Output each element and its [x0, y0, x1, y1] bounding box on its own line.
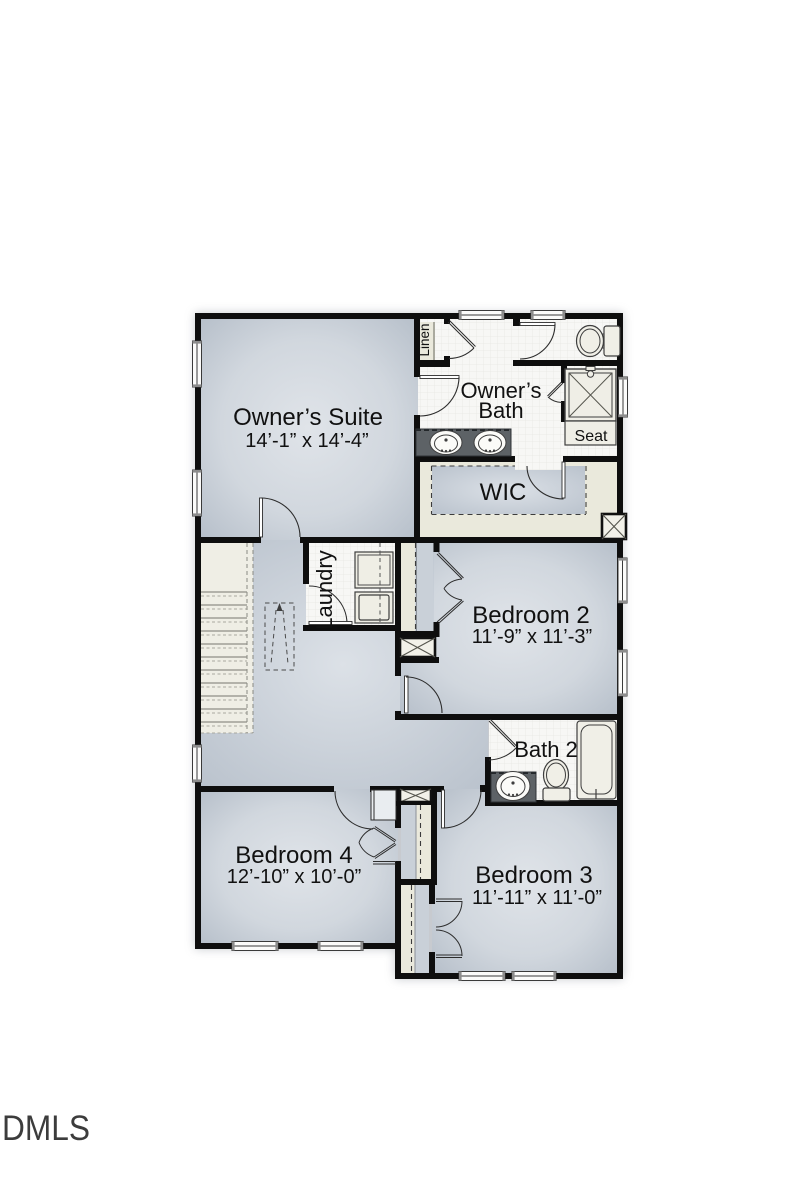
svg-text:11’-9” x 11’-3”: 11’-9” x 11’-3” — [472, 626, 592, 648]
svg-text:Laundry: Laundry — [312, 550, 337, 630]
svg-text:14’-1” x 14’-4”: 14’-1” x 14’-4” — [245, 430, 368, 452]
svg-text:WIC: WIC — [480, 479, 527, 506]
svg-text:Bedroom 4: Bedroom 4 — [235, 842, 352, 869]
svg-text:Bedroom 3: Bedroom 3 — [475, 862, 592, 889]
svg-text:Seat: Seat — [575, 428, 608, 445]
svg-text:11’-11” x 11’-0”: 11’-11” x 11’-0” — [472, 887, 602, 909]
svg-text:Bath 2: Bath 2 — [514, 737, 578, 762]
svg-text:Linen: Linen — [417, 323, 432, 356]
svg-text:Bedroom 2: Bedroom 2 — [472, 602, 589, 629]
svg-text:Owner’s Suite: Owner’s Suite — [233, 404, 383, 431]
svg-text:DMLS: DMLS — [2, 1109, 90, 1148]
svg-text:Bath: Bath — [478, 398, 523, 423]
svg-text:12’-10” x 10’-0”: 12’-10” x 10’-0” — [227, 866, 362, 888]
